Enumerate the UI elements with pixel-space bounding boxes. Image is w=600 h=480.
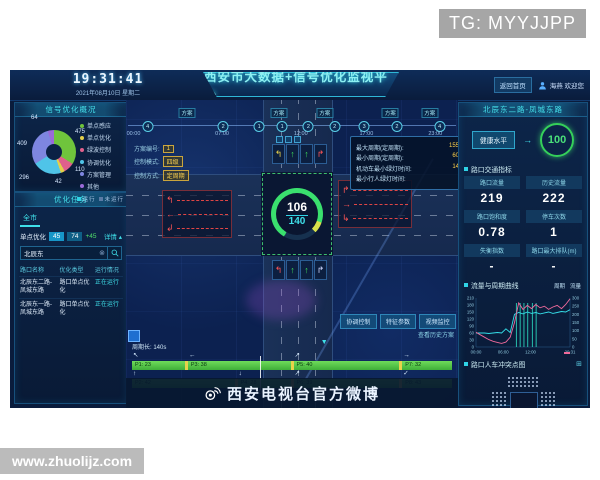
overview-panel: 信号优化概况 64 475 110 42 296 409 单点感应 单点优化 [14, 102, 128, 192]
table-row[interactable]: 北辰东一路-凤城东路 路口单点优化 正在运行 [19, 298, 123, 320]
stat-value-2: 74 [67, 232, 82, 241]
svg-text:150: 150 [572, 320, 580, 325]
svg-text:90: 90 [469, 324, 474, 329]
trend-legend-item: 周期 [554, 282, 565, 290]
legend-label: 协调优化 [87, 158, 111, 167]
svg-text:150: 150 [467, 310, 475, 315]
table-row[interactable]: 北辰东二路-凤城东路 路口单点优化 正在运行 [19, 276, 123, 298]
signal-info-label: 最小行人绿灯时间: [356, 174, 406, 183]
conflict-section-title: 路口人车冲突点图 ⊞ [459, 356, 587, 370]
signal-info-line: 最小周期(定周期): 60s [356, 153, 458, 162]
phase-arrow-icon: ↑ [133, 371, 136, 378]
signal-info-line: 最小行人绿灯时间: - [356, 174, 458, 183]
phase-segment: ↗ P5: 40 [291, 361, 400, 370]
crosswalk-grid-west [491, 391, 506, 408]
svg-text:00:00: 00:00 [471, 350, 482, 355]
timeline-plan-tag: 方案 [179, 108, 196, 118]
weibo-caption: 西安电视台官方微博 [227, 383, 380, 404]
map-park-area [246, 280, 316, 320]
legend-label: 绿波控制 [87, 145, 111, 154]
search-icon [111, 249, 119, 257]
legend-label: 方案管理 [87, 170, 111, 179]
platform-title-plate: 西安市大数据+信号优化监视平台 [203, 72, 399, 97]
control-label: 方案编号: [134, 144, 160, 153]
approach-row: ↲ [166, 221, 228, 235]
metric-cell: 路口饱和度 0.78 [464, 210, 520, 242]
intersection-detail-panel: 北辰东二路-凤城东路 健康水平 → 100 路口交通指标 路口流量 219 历史… [458, 102, 588, 406]
timeline-plan-tag: 方案 [382, 108, 399, 118]
phase-label: P3: 38 [191, 363, 207, 369]
timeline-marker[interactable]: 1 [254, 121, 265, 132]
metric-label: 路口流量 [464, 176, 520, 189]
metric-cell: 失衡指数 - [464, 244, 520, 276]
legend-item: 其他 [80, 182, 124, 191]
metric-cell: 路口最大排队(m) - [526, 244, 582, 276]
conflict-center-square [510, 392, 538, 408]
approach-row: → [342, 197, 408, 211]
signal-info-label: 最大周期(定周期): [356, 143, 404, 152]
turn-arrow-icon: → [342, 200, 351, 209]
platform-title: 西安市大数据+信号优化监视平台 [204, 70, 398, 104]
control-row: 方案编号: 1 [134, 144, 189, 153]
city-map[interactable]: 方案方案方案方案方案 421122324 00:0007:0012:0017:0… [126, 100, 458, 408]
intersection-name: 北辰东一路-凤城东路 [19, 299, 59, 320]
phase-label: P1: 23 [135, 363, 151, 369]
approach-row: ↰ [166, 193, 228, 207]
timeline-marker[interactable]: 4 [142, 121, 153, 132]
turn-arrow-icon: ↱ [342, 186, 350, 195]
intersection-title: 北辰东二路-凤城东路 [459, 103, 587, 117]
optimization-type: 路口单点优化 [59, 299, 94, 320]
metric-value: 1 [526, 223, 582, 242]
col-header: 优化类型 [59, 263, 94, 276]
clear-icon[interactable]: ⊗ [97, 249, 107, 257]
bullet-icon [464, 362, 468, 366]
legend-dot-icon [80, 160, 84, 164]
control-label: 控制方式: [134, 171, 160, 180]
metric-cell: 停车次数 1 [526, 210, 582, 242]
legend-label: 单点优化 [87, 133, 111, 142]
search-button[interactable] [107, 247, 121, 259]
metric-label: 失衡指数 [464, 244, 520, 257]
tab-citywide[interactable]: 全市 [20, 211, 40, 227]
donut-callout: 42 [55, 179, 62, 185]
legend-item: 协调优化 [80, 158, 124, 167]
legend-dot-icon [80, 172, 84, 176]
metrics-section-title: 路口交通指标 [459, 161, 587, 175]
control-row: 控制方式: 定周期 [134, 170, 189, 181]
single-point-stat-row: 单点优化 45 74 +45 详情 ▴ [15, 227, 127, 243]
bullet-icon [464, 167, 468, 171]
phase-label: P5: 40 [297, 363, 313, 369]
user-menu[interactable]: 海燕 欢迎您 [538, 80, 584, 90]
legend-dot-icon [80, 148, 84, 152]
phase-arrow-icon: ↗ [295, 371, 300, 378]
timeline-marker[interactable]: 2 [329, 121, 340, 132]
arrow-right-icon: → [523, 135, 532, 145]
lane-arrow-icon: ↱ [314, 144, 327, 164]
metrics-grid: 路口流量 219 历史流量 222 路口饱和度 0.78 停车次数 1 [459, 175, 587, 277]
phase-arrow-icon: ↖ [133, 353, 138, 360]
health-score: 100 [540, 123, 574, 157]
crosswalk-grid-east [540, 391, 555, 408]
lane-arrow-icon: ↑ [286, 260, 299, 280]
conflict-diagram [471, 374, 575, 408]
metric-value: 222 [526, 189, 582, 208]
tasks-legend-item: 未运行 [99, 195, 124, 203]
cycle-gauge: 106 140 [271, 188, 323, 240]
legend-dot-icon [80, 136, 84, 140]
control-row: 控制模式: 四级 [134, 156, 189, 167]
clock-time: 19:31:41 [58, 72, 158, 87]
trend-legend-item: 流量 [570, 282, 581, 290]
south-lane-box: ↰↑↑↱ [272, 260, 327, 280]
timeline-plan-tag: 方案 [316, 108, 333, 118]
svg-text:180: 180 [467, 303, 475, 308]
phase-arrow-icon: ↗ [295, 353, 300, 360]
timeline-plan-tag: 方案 [270, 108, 287, 118]
legend-dot-icon [80, 184, 84, 188]
donut-callout: 409 [17, 141, 27, 147]
metric-value: - [464, 257, 520, 276]
metric-label: 停车次数 [526, 210, 582, 223]
svg-text:12:00: 12:00 [525, 350, 536, 355]
telegram-watermark: TG: MYYJJPP [439, 9, 586, 38]
expand-icon[interactable]: ⊞ [576, 360, 582, 368]
home-button[interactable]: 返回首页 [494, 77, 532, 93]
col-header: 路口名称 [19, 263, 59, 276]
metric-cell: 路口流量 219 [464, 176, 520, 208]
intersection-name: 北辰东二路-凤城东路 [19, 277, 59, 298]
svg-text:100: 100 [572, 328, 580, 333]
timeline-time-label: 00:00 [127, 131, 141, 137]
legend-item: 单点优化 [80, 133, 124, 142]
donut-callout: 296 [19, 175, 29, 181]
svg-text:250: 250 [572, 304, 580, 309]
lane-arrow-icon: ↑ [300, 144, 313, 164]
legend-label: 其他 [87, 182, 99, 191]
metric-value: - [526, 257, 582, 276]
legend-label: 单点感应 [87, 121, 111, 130]
approach-row: ← [166, 207, 228, 221]
svg-text:120: 120 [467, 317, 475, 322]
trend-legend: 周期流量 [554, 282, 581, 290]
plan-timeline: 方案方案方案方案方案 421122324 00:0007:0012:0017:0… [128, 108, 456, 138]
map-action-button[interactable]: 协调控制 [340, 314, 377, 329]
clock: 19:31:41 2021年08月10日 星期二 [58, 72, 158, 97]
phase-arrow-icon: ↓ [239, 371, 242, 378]
approach-row: ↳ [342, 211, 408, 225]
health-level-button[interactable]: 健康水平 [472, 131, 515, 149]
turn-arrow-icon: ← [166, 210, 175, 219]
control-value: 定周期 [163, 170, 189, 181]
west-approach-panel: ↰←↲ [162, 190, 232, 238]
signal-info-line: 最大周期(定周期): 155s [356, 143, 458, 152]
clock-date: 2021年08月10日 星期二 [58, 88, 158, 97]
phase-bar-row1: ↖ P1: 23 ← P3: 38 ↗ P5: 40 → P7: 32 [132, 361, 452, 370]
metric-value: 219 [464, 189, 520, 208]
metric-label: 路口饱和度 [464, 210, 520, 223]
svg-text:210: 210 [467, 296, 475, 301]
dashboard: 19:31:41 2021年08月10日 星期二 西安市大数据+信号优化监视平台… [10, 70, 590, 408]
flow-cycle-chart: 030609012015018021005010015020025030000:… [461, 292, 585, 356]
tasks-table: 路口名称 优化类型 运行情况 北辰东二路-凤城东路 路口单点优化 正在运行 北辰… [19, 263, 123, 320]
metric-label: 历史流量 [526, 176, 582, 189]
svg-text:30: 30 [469, 338, 474, 343]
search-box: ⊗ [20, 246, 122, 260]
metric-value: 0.78 [464, 223, 520, 242]
control-scheme-block: 方案编号: 1 控制模式: 四级 控制方式: 定周期 [134, 144, 189, 184]
phase-segment: ← P3: 38 [185, 361, 291, 370]
timeline-time-label: 12:00 [294, 131, 308, 137]
svg-text:06:00: 06:00 [498, 350, 509, 355]
map-action-button[interactable]: 特征参数 [380, 314, 417, 329]
dashboard-header: 19:31:41 2021年08月10日 星期二 西安市大数据+信号优化监视平台… [10, 70, 590, 101]
run-status: 正在运行 [94, 299, 123, 320]
legend-dot-icon [80, 124, 84, 128]
stat-delta: +45 [85, 233, 96, 240]
optimization-type: 路口单点优化 [59, 277, 94, 298]
signal-info-value: 155s [449, 143, 458, 152]
signal-info-value: 14s [452, 164, 458, 173]
phase-pointer-icon: ▼ [321, 339, 328, 346]
svg-text:200: 200 [572, 312, 580, 317]
timeline-line [128, 125, 456, 126]
signal-info-label: 最小周期(定周期): [356, 153, 404, 162]
timeline-time-label: 07:00 [215, 131, 229, 137]
donut-callout: 64 [31, 115, 38, 121]
col-header: 运行情况 [94, 263, 123, 276]
svg-text:50: 50 [572, 336, 577, 341]
legend-item: 方案管理 [80, 170, 124, 179]
control-value: 四级 [163, 156, 183, 167]
signal-info-line: 机动车最小绿灯时间: 14s [356, 164, 458, 173]
svg-text:300: 300 [572, 296, 580, 301]
run-status: 正在运行 [94, 277, 123, 298]
tasks-panel-header: 优化任务 运行未运行 [15, 193, 127, 207]
gauge-current: 106 [287, 201, 307, 213]
map-action-button[interactable]: 视频监控 [419, 314, 456, 329]
overview-legend: 单点感应 单点优化 绿波控制 协调优化 [80, 121, 124, 194]
user-name: 海燕 欢迎您 [550, 80, 584, 90]
metric-cell: 历史流量 222 [526, 176, 582, 208]
tasks-legend-item: 运行 [77, 195, 95, 203]
lane-arrow-icon: ↑ [300, 260, 313, 280]
lane-arrow-icon: ↰ [272, 144, 285, 164]
timeline-marker[interactable]: 1 [277, 121, 288, 132]
user-icon [538, 81, 547, 90]
lane-arrow-icon: ↑ [286, 144, 299, 164]
stat-value-1: 45 [49, 232, 64, 241]
legend-item: 绿波控制 [80, 145, 124, 154]
turn-arrow-icon: ↲ [166, 224, 174, 233]
svg-text:60: 60 [469, 331, 474, 336]
legend-item: 单点感应 [80, 121, 124, 130]
health-row: 健康水平 → 100 [459, 117, 587, 161]
phase-label: P7: 32 [405, 363, 421, 369]
weibo-icon [204, 385, 221, 401]
weibo-caption-bar: 西安电视台官方微博 [126, 378, 458, 408]
tasks-panel: 优化任务 运行未运行 全市 单点优化 45 74 +45 详情 ▴ ⊗ [14, 192, 128, 404]
gauge-cycle: 140 [289, 217, 306, 227]
tasks-legend: 运行未运行 [77, 195, 124, 203]
phase-segment: → P7: 32 [399, 361, 452, 370]
phase-segment: ↖ P1: 23 [132, 361, 185, 370]
site-watermark: www.zhuolijz.com [0, 448, 144, 474]
turn-arrow-icon: ↳ [342, 214, 350, 223]
control-label: 控制模式: [134, 157, 160, 166]
optimization-donut-wrap: 64 475 110 42 296 409 [21, 119, 87, 185]
search-input[interactable] [21, 250, 97, 257]
phase-arrow-icon: ← [189, 353, 196, 360]
crosswalk-grid-north [507, 376, 539, 389]
signal-info-box: 最大周期(定周期): 155s 最小周期(定周期): 60s 机动车最小绿灯时间… [350, 136, 458, 190]
detail-link[interactable]: 详情 ▴ [104, 231, 122, 241]
north-lane-box: ↰↑↑↱ [272, 144, 327, 164]
lane-arrow-icon: ↱ [314, 260, 327, 280]
metric-label: 路口最大排队(m) [526, 244, 582, 257]
stat-label: 单点优化 [20, 231, 46, 241]
signal-info-value: 60s [452, 153, 458, 162]
signal-info-label: 机动车最小绿灯时间: [356, 164, 412, 173]
phase-arrow-icon: → [403, 353, 410, 360]
turn-arrow-icon: ↰ [166, 196, 174, 205]
bullet-icon [464, 283, 468, 287]
donut-hole [46, 144, 62, 160]
phase-arrow-icon: ✓ [403, 371, 408, 378]
lane-arrow-icon: ↰ [272, 260, 285, 280]
cycle-length-label: 周期长: 140s [132, 345, 166, 351]
timeline-marker[interactable]: 2 [391, 121, 402, 132]
control-value: 1 [163, 145, 174, 153]
timeline-plan-tag: 方案 [421, 108, 438, 118]
table-header-row: 路口名称 优化类型 运行情况 [19, 263, 123, 276]
